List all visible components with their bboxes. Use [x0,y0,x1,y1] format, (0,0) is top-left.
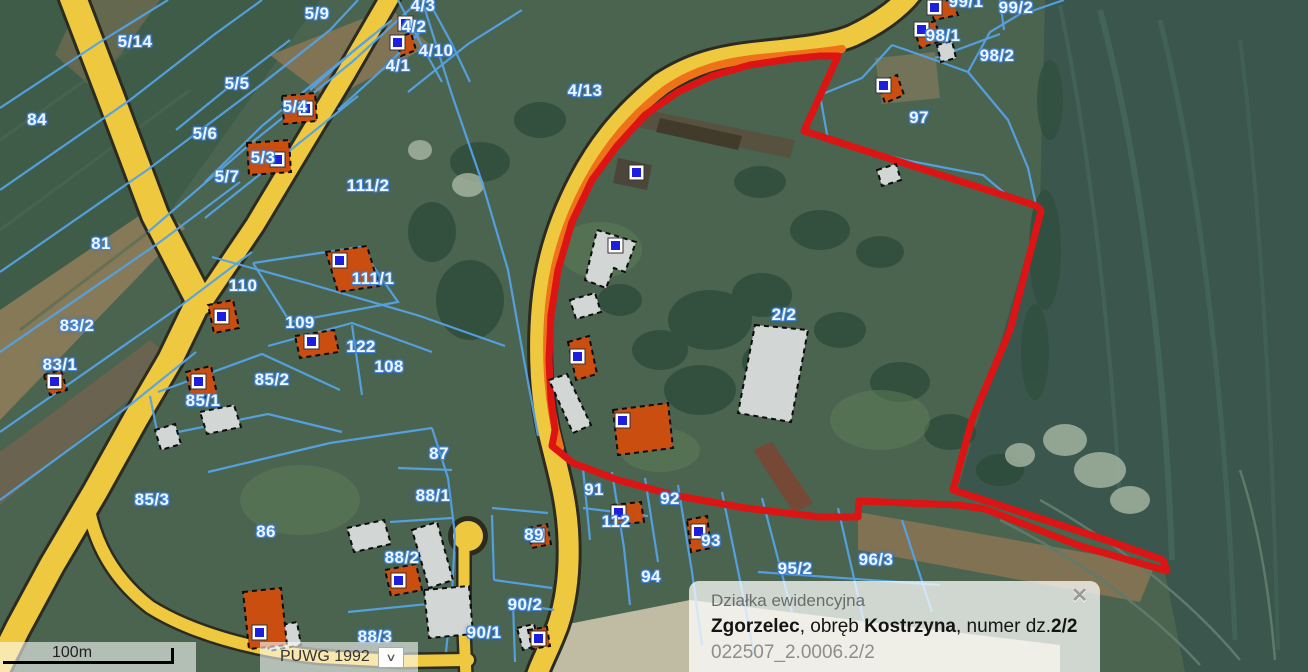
chevron-down-icon: ∨ [385,651,396,664]
popup-parcel-number: 2/2 [1051,616,1077,637]
marker-icon [391,573,406,588]
marker-icon [531,631,546,646]
marker-icon [691,524,706,539]
popup-municipality: Zgorzelec [711,616,800,637]
marker-icon [298,101,313,116]
marker-icon [629,165,644,180]
projection-value: PUWG 1992 [280,648,370,666]
map-canvas[interactable] [0,0,1308,672]
popup-title: Działka ewidencyjna [711,591,1082,611]
popup-district: Kostrzyna [864,616,956,637]
scale-bar: 100m [0,642,196,672]
popup-parcel-id: 022507_2.0006.2/2 [711,642,1082,664]
projection-bar: PUWG 1992 ∨ [260,642,418,672]
marker-icon [252,625,267,640]
marker-icon [304,334,319,349]
marker-icon [914,22,929,37]
map-viewport: 5/145/94/34/24/104/14/13845/55/45/65/35/… [0,0,1308,672]
marker-icon [332,253,347,268]
marker-icon [214,309,229,324]
marker-icon [270,152,285,167]
projection-select[interactable]: ∨ [378,647,404,668]
marker-icon [398,16,413,31]
marker-icon [608,238,623,253]
scale-bar-line [3,648,174,664]
marker-icon [570,349,585,364]
marker-icon [390,35,405,50]
popup-parcel-line: Zgorzelec, obręb Kostrzyna, numer dz.2/2 [711,616,1082,638]
marker-icon [876,78,891,93]
marker-icon [615,413,630,428]
marker-icon [611,505,626,520]
marker-icon [530,528,545,543]
close-icon[interactable]: ✕ [1071,585,1088,607]
feature-info-popup: Działka ewidencyjna Zgorzelec, obręb Kos… [689,581,1100,672]
marker-icon [927,0,942,15]
marker-icon [47,374,62,389]
marker-icon [191,374,206,389]
